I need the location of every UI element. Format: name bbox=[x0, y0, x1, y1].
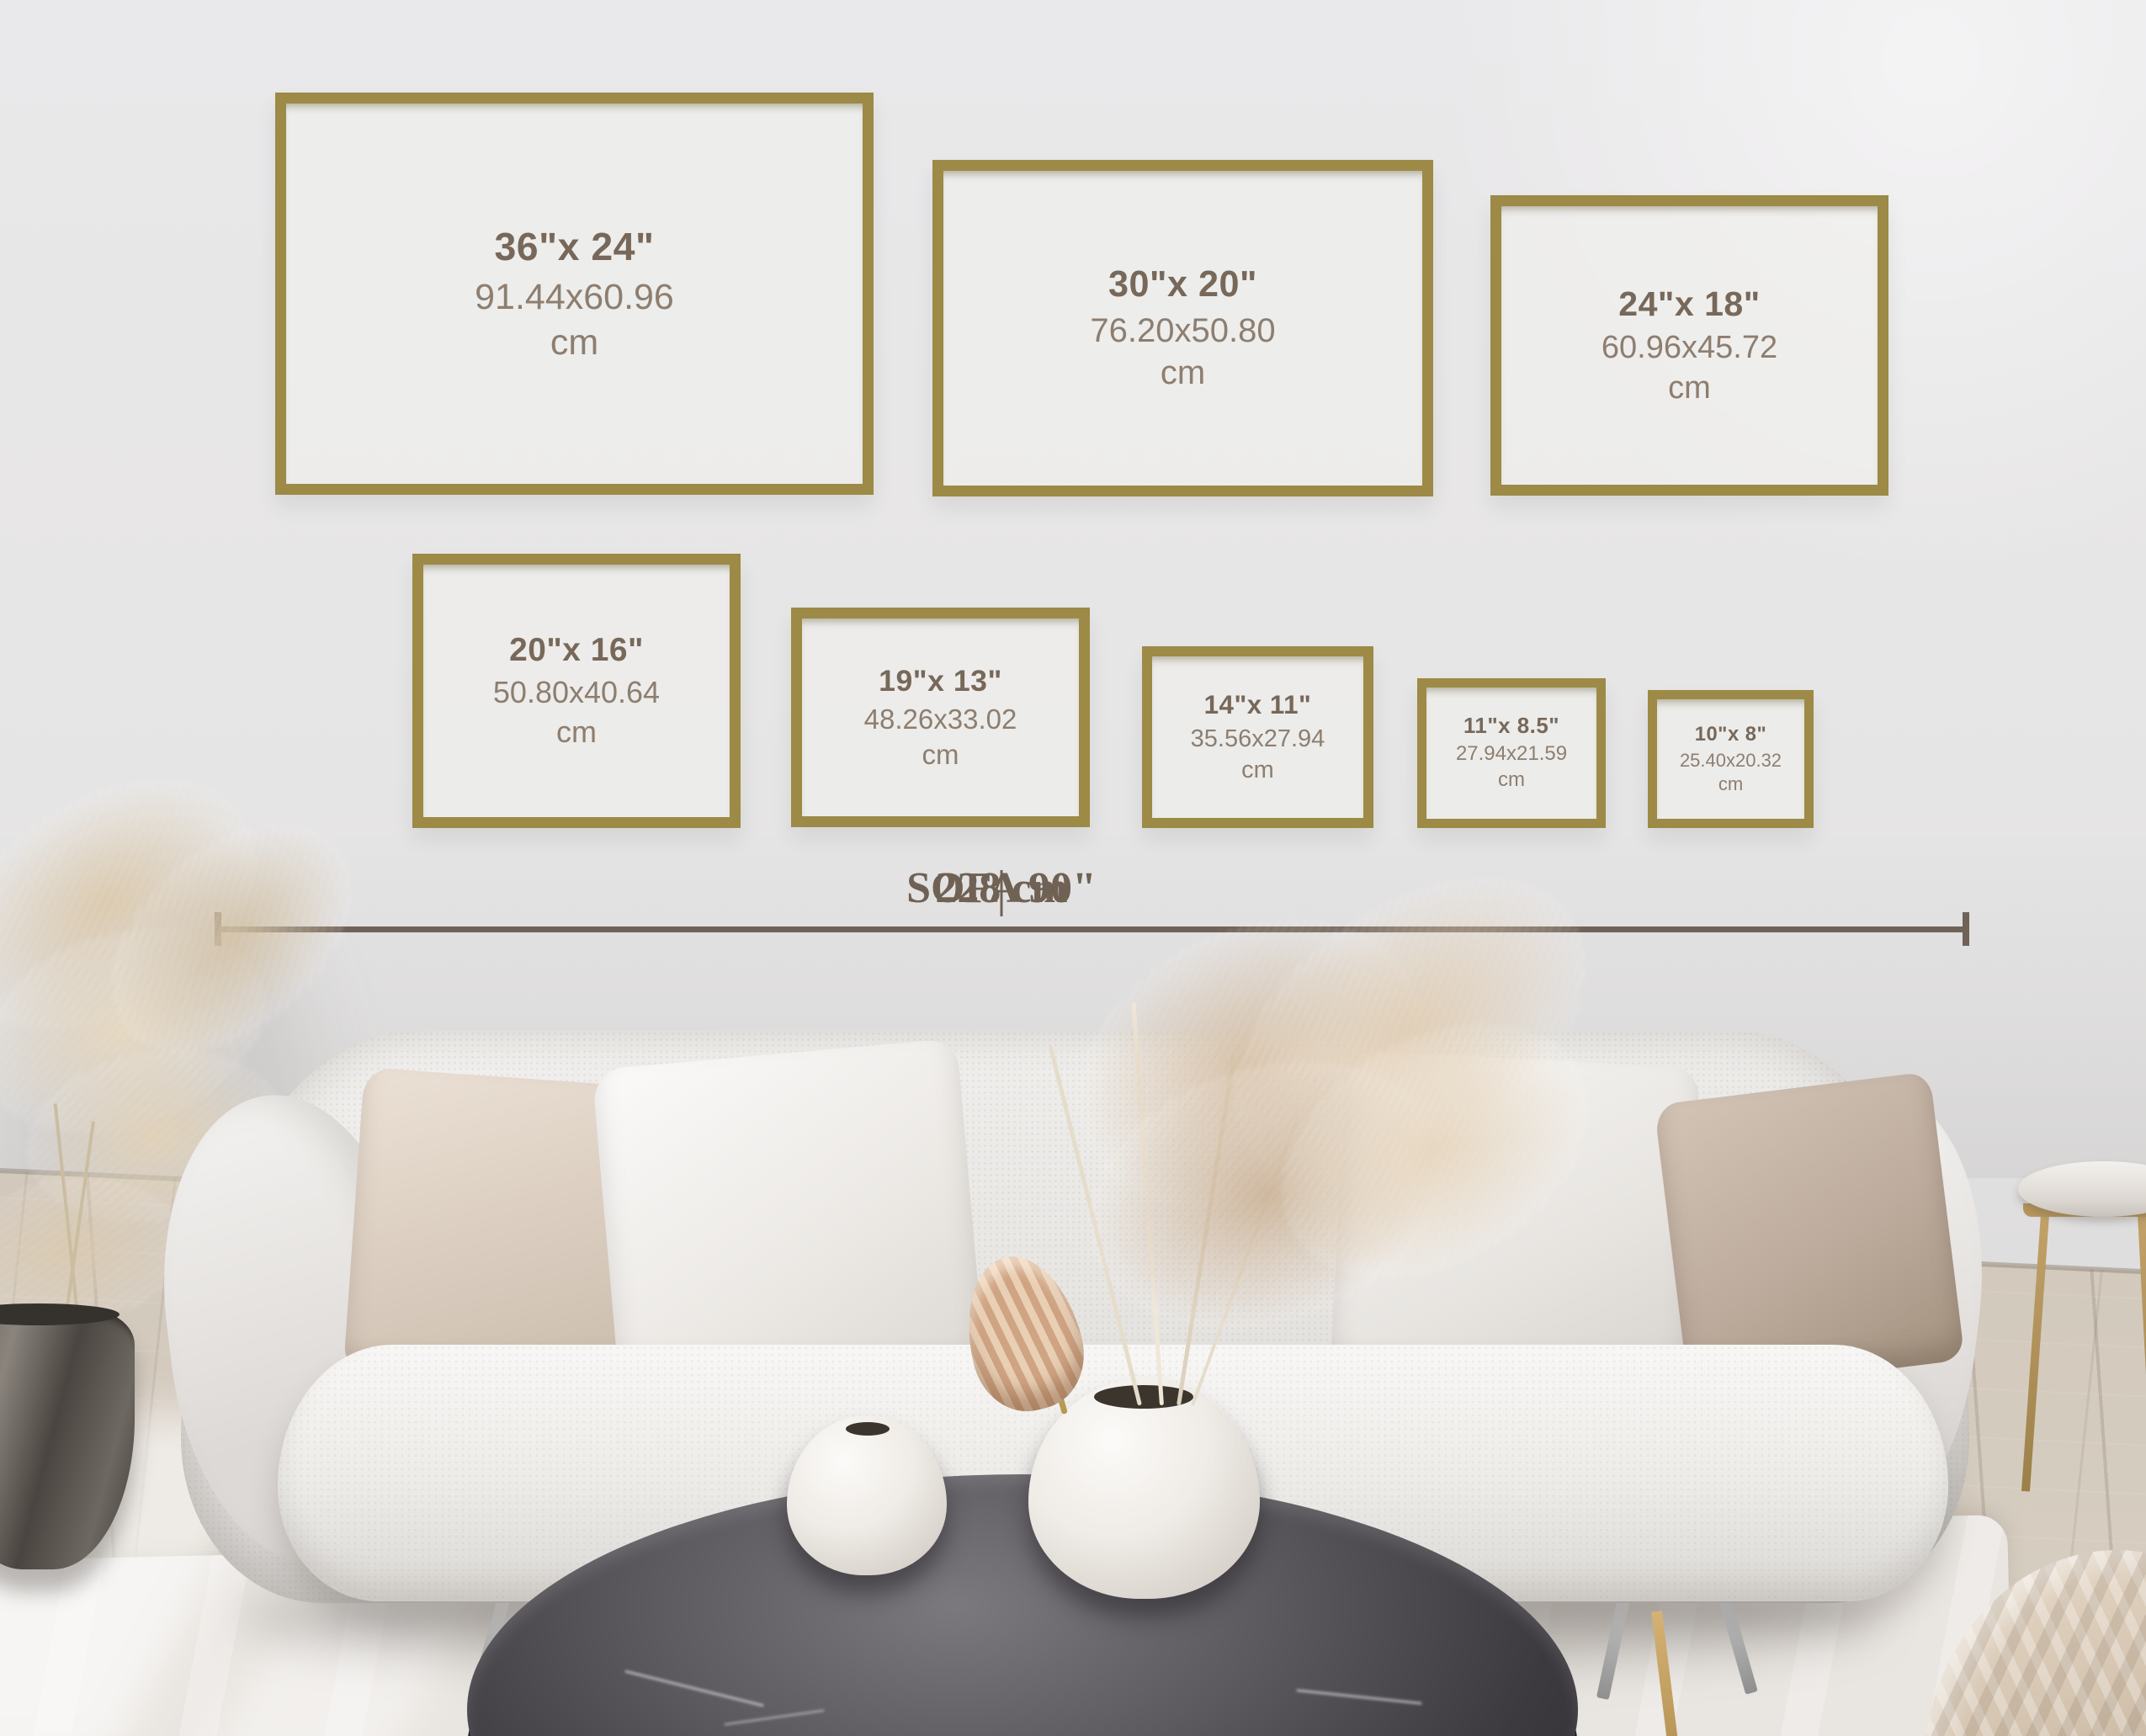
frame-30x20: 30"x 20" 76.20x50.80 cm bbox=[932, 160, 1433, 496]
frame-size-unit: cm bbox=[1668, 370, 1711, 406]
frame-size-cm: 48.26x33.02 bbox=[864, 703, 1017, 735]
frame-size-title: 24"x 18" bbox=[1618, 284, 1760, 324]
frame-19x13: 19"x 13" 48.26x33.02 cm bbox=[791, 608, 1090, 827]
frame-size-unit: cm bbox=[1718, 773, 1743, 795]
frame-size-cm: 35.56x27.94 bbox=[1191, 725, 1325, 753]
frame-20x16: 20"x 16" 50.80x40.64 cm bbox=[412, 554, 741, 828]
frame-size-cm: 60.96x45.72 bbox=[1602, 330, 1777, 366]
frame-size-cm: 50.80x40.64 bbox=[493, 675, 660, 710]
vase-opening bbox=[846, 1422, 890, 1436]
frame-size-unit: cm bbox=[550, 322, 598, 364]
living-room-frame-size-guide: 36"x 24" 91.44x60.96 cm 30"x 20" 76.20x5… bbox=[0, 0, 2146, 1736]
frame-size-unit: cm bbox=[1161, 354, 1205, 392]
frame-size-title: 36"x 24" bbox=[494, 224, 654, 269]
frame-size-title: 30"x 20" bbox=[1108, 264, 1257, 305]
frame-size-unit: cm bbox=[922, 739, 959, 771]
frame-size-title: 19"x 13" bbox=[879, 664, 1002, 698]
frame-size-unit: cm bbox=[556, 714, 597, 750]
frame-size-cm: 25.40x20.32 bbox=[1680, 750, 1782, 772]
frame-size-title: 10"x 8" bbox=[1695, 723, 1766, 746]
frame-size-unit: cm bbox=[1241, 757, 1274, 784]
frame-size-unit: cm bbox=[1498, 768, 1525, 792]
frame-24x18: 24"x 18" 60.96x45.72 cm bbox=[1490, 195, 1888, 496]
frame-size-title: 20"x 16" bbox=[509, 632, 644, 669]
sofa-width-centimeters: 228 cm bbox=[935, 863, 1067, 913]
sofa-measurement-label: SOFA 90" | 228 cm bbox=[732, 863, 1271, 914]
frame-size-title: 14"x 11" bbox=[1204, 690, 1312, 720]
sofa-measurement-line bbox=[215, 926, 1969, 932]
frame-size-cm: 76.20x50.80 bbox=[1090, 312, 1275, 350]
frame-size-cm: 91.44x60.96 bbox=[475, 277, 674, 318]
frame-14x11: 14"x 11" 35.56x27.94 cm bbox=[1142, 646, 1373, 828]
frame-size-title: 11"x 8.5" bbox=[1463, 714, 1559, 739]
frame-11x8-5: 11"x 8.5" 27.94x21.59 cm bbox=[1417, 678, 1606, 828]
frame-10x8: 10"x 8" 25.40x20.32 cm bbox=[1648, 690, 1814, 828]
frame-36x24: 36"x 24" 91.44x60.96 cm bbox=[275, 93, 874, 495]
frame-size-cm: 27.94x21.59 bbox=[1456, 742, 1567, 766]
